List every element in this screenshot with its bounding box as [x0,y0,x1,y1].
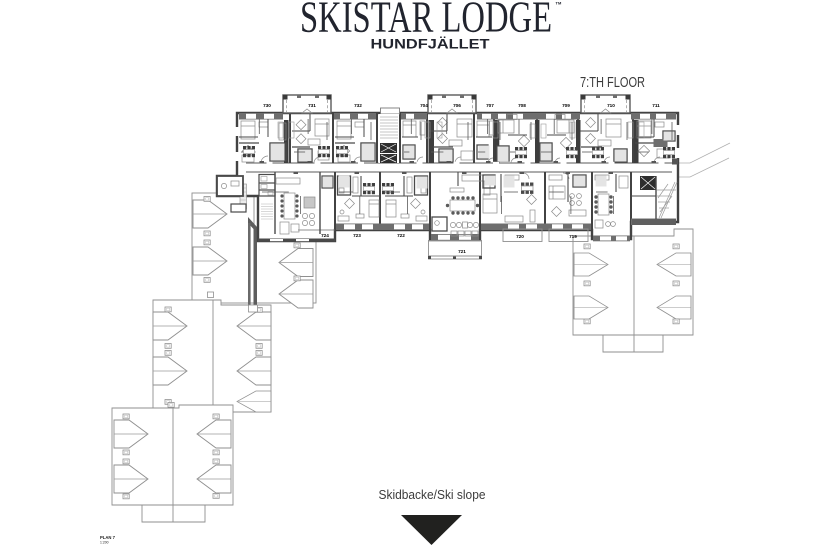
svg-text:PLAN 7: PLAN 7 [100,535,116,540]
svg-text:709: 709 [562,103,570,108]
svg-text:723: 723 [353,233,361,238]
svg-text:708: 708 [518,103,526,108]
svg-text:TM: TM [556,1,562,6]
svg-text:719: 719 [569,234,577,239]
svg-text:706: 706 [453,103,461,108]
svg-text:724: 724 [321,233,329,238]
svg-text:731: 731 [308,103,316,108]
svg-text:722: 722 [397,233,405,238]
svg-text:721: 721 [458,249,466,254]
svg-text:732: 732 [354,103,362,108]
svg-text:711: 711 [652,103,660,108]
svg-text:HUNDFJÄLLET: HUNDFJÄLLET [371,36,491,52]
svg-text:710: 710 [607,103,615,108]
svg-text:707: 707 [486,103,494,108]
svg-text:730: 730 [263,103,271,108]
svg-text:7:TH FLOOR: 7:TH FLOOR [580,75,645,91]
svg-text:704: 704 [420,103,428,108]
svg-text:720: 720 [516,234,524,239]
svg-text:Skidbacke/Ski slope: Skidbacke/Ski slope [379,487,486,502]
svg-text:1:200: 1:200 [100,541,109,545]
